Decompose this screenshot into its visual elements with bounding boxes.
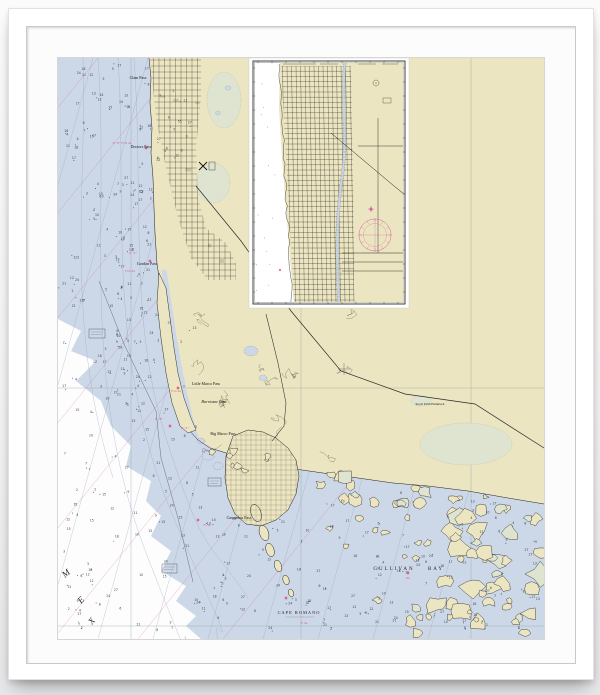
svg-text:7: 7 — [141, 312, 143, 316]
svg-text:24: 24 — [75, 278, 79, 282]
svg-text:2: 2 — [141, 281, 143, 285]
svg-text:3: 3 — [224, 577, 226, 581]
svg-text:3: 3 — [100, 384, 102, 388]
svg-text:Clam Pass: Clam Pass — [130, 75, 147, 80]
svg-text:Doctors Pass: Doctors Pass — [131, 144, 152, 149]
svg-text:Gordon Pass: Gordon Pass — [137, 261, 158, 266]
svg-text:17: 17 — [103, 360, 107, 364]
svg-text:G "1": G "1" — [181, 426, 190, 430]
svg-text:5: 5 — [93, 217, 95, 221]
svg-text:7: 7 — [171, 626, 173, 630]
svg-text:13: 13 — [192, 326, 196, 330]
svg-text:2: 2 — [63, 340, 65, 344]
svg-text:15: 15 — [127, 354, 131, 358]
svg-text:7: 7 — [500, 593, 502, 597]
svg-text:4: 4 — [76, 513, 78, 517]
svg-text:17: 17 — [345, 519, 349, 523]
svg-text:4: 4 — [512, 521, 514, 525]
svg-text:CAPE ROMANO: CAPE ROMANO — [278, 610, 321, 615]
svg-text:12: 12 — [86, 572, 90, 576]
svg-text:Little Marco Pass: Little Marco Pass — [192, 381, 221, 386]
svg-text:27: 27 — [114, 588, 118, 592]
svg-text:13: 13 — [167, 320, 171, 324]
svg-text:5: 5 — [130, 296, 132, 300]
svg-text:2: 2 — [72, 289, 74, 293]
svg-text:12: 12 — [369, 607, 373, 611]
svg-text:21: 21 — [147, 242, 151, 246]
svg-text:21: 21 — [66, 144, 70, 148]
svg-text:7: 7 — [323, 618, 325, 622]
svg-text:7: 7 — [425, 581, 427, 585]
svg-text:12: 12 — [67, 585, 71, 589]
svg-text:10: 10 — [486, 511, 490, 515]
svg-text:12: 12 — [149, 188, 153, 192]
svg-text:12: 12 — [352, 605, 356, 609]
svg-text:11: 11 — [82, 73, 86, 77]
svg-text:10: 10 — [105, 396, 109, 400]
svg-text:15: 15 — [129, 243, 133, 247]
svg-text:17: 17 — [222, 533, 226, 537]
svg-text:7: 7 — [93, 208, 95, 212]
svg-text:24: 24 — [164, 560, 168, 564]
svg-text:17: 17 — [93, 360, 97, 364]
svg-text:21: 21 — [72, 304, 76, 308]
svg-text:6: 6 — [139, 127, 141, 131]
svg-text:24: 24 — [155, 313, 159, 317]
svg-text:8: 8 — [116, 332, 118, 336]
svg-text:Hurricane Pass: Hurricane Pass — [200, 399, 227, 404]
svg-text:27: 27 — [117, 63, 121, 67]
svg-text:12: 12 — [90, 579, 94, 583]
svg-text:24: 24 — [99, 93, 103, 97]
svg-text:4: 4 — [97, 182, 99, 186]
svg-text:21: 21 — [117, 393, 121, 397]
svg-text:2: 2 — [76, 488, 78, 492]
svg-text:3: 3 — [125, 402, 127, 406]
svg-text:18: 18 — [115, 534, 119, 538]
svg-text:21: 21 — [62, 281, 66, 285]
svg-text:18: 18 — [82, 67, 86, 71]
svg-text:13: 13 — [389, 600, 393, 604]
svg-text:12: 12 — [74, 502, 78, 506]
svg-text:4: 4 — [382, 561, 384, 565]
svg-text:3: 3 — [104, 347, 106, 351]
svg-text:2: 2 — [494, 593, 496, 597]
svg-text:18: 18 — [118, 345, 122, 349]
svg-text:15: 15 — [90, 519, 94, 523]
svg-text:2: 2 — [143, 438, 145, 442]
svg-text:18: 18 — [473, 613, 477, 617]
svg-text:13: 13 — [127, 318, 131, 322]
svg-text:27: 27 — [531, 595, 535, 599]
svg-text:Royal Palm Hammock: Royal Palm Hammock — [415, 402, 444, 406]
svg-text:8: 8 — [186, 481, 188, 485]
svg-text:15: 15 — [145, 428, 149, 432]
svg-text:17: 17 — [92, 133, 96, 137]
svg-text:24: 24 — [170, 504, 174, 508]
svg-text:7: 7 — [133, 190, 135, 194]
svg-text:27: 27 — [241, 595, 245, 599]
svg-text:10: 10 — [139, 573, 143, 577]
svg-text:13: 13 — [533, 561, 537, 565]
svg-text:15: 15 — [179, 516, 183, 520]
svg-text:12: 12 — [241, 607, 245, 611]
svg-text:11: 11 — [133, 511, 137, 515]
svg-text:18: 18 — [98, 354, 102, 358]
svg-text:3: 3 — [300, 539, 302, 543]
svg-text:13: 13 — [140, 190, 144, 194]
svg-text:12: 12 — [143, 225, 147, 229]
svg-text:11: 11 — [183, 99, 187, 103]
svg-text:15: 15 — [148, 529, 152, 533]
svg-text:2: 2 — [68, 607, 70, 611]
svg-text:15: 15 — [480, 530, 484, 534]
svg-text:13: 13 — [75, 256, 79, 260]
svg-text:Big Marco Pass: Big Marco Pass — [210, 431, 236, 436]
svg-text:3: 3 — [472, 508, 474, 512]
svg-text:17: 17 — [72, 156, 76, 160]
svg-text:11: 11 — [148, 298, 152, 302]
svg-text:15: 15 — [67, 527, 71, 531]
svg-text:9: 9 — [535, 540, 537, 544]
svg-text:5: 5 — [359, 612, 361, 616]
svg-text:3: 3 — [378, 596, 380, 600]
svg-text:3: 3 — [86, 191, 88, 195]
svg-text:6: 6 — [119, 606, 121, 610]
svg-text:5: 5 — [112, 67, 114, 71]
svg-text:Fl G 4s: Fl G 4s — [171, 389, 182, 393]
svg-text:17: 17 — [138, 198, 142, 202]
svg-text:7: 7 — [402, 533, 404, 537]
svg-text:13: 13 — [471, 500, 475, 504]
svg-text:8: 8 — [523, 589, 525, 593]
svg-text:7: 7 — [134, 340, 136, 344]
svg-text:12: 12 — [141, 401, 145, 405]
svg-text:11: 11 — [196, 466, 200, 470]
svg-text:10: 10 — [100, 195, 104, 199]
svg-text:4: 4 — [470, 516, 472, 520]
svg-text:12: 12 — [110, 507, 114, 511]
svg-text:4: 4 — [77, 137, 79, 141]
svg-text:6: 6 — [83, 121, 85, 125]
svg-text:2: 2 — [94, 487, 96, 491]
svg-text:15: 15 — [405, 610, 409, 614]
svg-text:Caxambas Pass: Caxambas Pass — [227, 515, 252, 520]
svg-text:17: 17 — [365, 531, 369, 535]
svg-text:17: 17 — [62, 384, 66, 388]
svg-text:4: 4 — [115, 455, 117, 459]
svg-text:12: 12 — [70, 276, 74, 280]
svg-text:27: 27 — [316, 569, 320, 573]
svg-text:17: 17 — [331, 503, 335, 507]
svg-text:15: 15 — [194, 598, 198, 602]
svg-text:18: 18 — [353, 554, 357, 558]
svg-text:11: 11 — [123, 358, 127, 362]
svg-text:13: 13 — [216, 535, 220, 539]
svg-text:6: 6 — [319, 584, 321, 588]
svg-text:10: 10 — [341, 499, 345, 503]
svg-text:9: 9 — [116, 340, 118, 344]
svg-text:8: 8 — [238, 523, 240, 527]
svg-text:6: 6 — [400, 491, 402, 495]
svg-text:18: 18 — [88, 568, 92, 572]
svg-text:5: 5 — [192, 493, 194, 497]
svg-text:6: 6 — [157, 156, 159, 160]
svg-text:17: 17 — [449, 560, 453, 564]
svg-text:8: 8 — [501, 573, 503, 577]
svg-text:24: 24 — [288, 601, 292, 605]
svg-text:24: 24 — [276, 583, 280, 587]
svg-text:12: 12 — [175, 154, 179, 158]
svg-text:15: 15 — [161, 520, 165, 524]
svg-text:9: 9 — [124, 371, 126, 375]
svg-text:R "8": R "8" — [155, 417, 163, 421]
svg-text:10: 10 — [444, 620, 448, 624]
svg-text:21: 21 — [136, 622, 140, 626]
svg-text:4: 4 — [75, 377, 77, 381]
svg-text:9: 9 — [155, 513, 157, 517]
svg-text:21: 21 — [131, 181, 135, 185]
svg-text:Fl 4s: Fl 4s — [204, 523, 211, 527]
svg-text:8: 8 — [168, 116, 170, 120]
svg-text:8: 8 — [495, 516, 497, 520]
svg-text:27: 27 — [525, 548, 529, 552]
svg-text:27: 27 — [440, 610, 444, 614]
svg-text:5: 5 — [102, 77, 104, 81]
svg-text:11: 11 — [449, 576, 453, 580]
svg-text:7: 7 — [127, 105, 129, 109]
svg-text:2: 2 — [183, 384, 185, 388]
svg-text:12: 12 — [378, 573, 382, 577]
svg-text:10: 10 — [382, 591, 386, 595]
svg-text:6: 6 — [121, 285, 123, 289]
svg-text:6: 6 — [117, 292, 119, 296]
svg-text:10: 10 — [135, 533, 139, 537]
svg-text:11: 11 — [97, 243, 101, 247]
svg-text:3: 3 — [87, 562, 89, 566]
svg-text:24: 24 — [113, 193, 117, 197]
svg-text:4: 4 — [79, 609, 81, 613]
svg-text:Fl 4s: Fl 4s — [301, 621, 308, 625]
svg-text:17: 17 — [528, 552, 532, 556]
svg-text:24: 24 — [136, 375, 140, 379]
svg-text:11: 11 — [463, 560, 467, 564]
svg-text:9: 9 — [365, 611, 367, 615]
svg-text:17: 17 — [492, 501, 496, 505]
svg-text:11: 11 — [244, 534, 248, 538]
svg-text:13: 13 — [536, 597, 540, 601]
svg-text:15: 15 — [75, 408, 79, 412]
svg-text:Fl R 4s: Fl R 4s — [125, 269, 135, 273]
svg-text:13: 13 — [124, 94, 128, 98]
svg-text:6: 6 — [116, 329, 118, 333]
svg-text:27: 27 — [125, 466, 129, 470]
svg-text:13: 13 — [297, 567, 301, 571]
svg-text:18: 18 — [147, 124, 151, 128]
svg-text:4: 4 — [66, 133, 68, 137]
picture-frame: 1175131141124211878615138415132122421211… — [8, 8, 594, 680]
svg-text:2: 2 — [486, 623, 488, 627]
svg-text:24: 24 — [416, 563, 420, 567]
svg-text:9: 9 — [505, 538, 507, 542]
svg-text:21: 21 — [156, 461, 160, 465]
svg-text:13: 13 — [168, 477, 172, 481]
svg-text:3: 3 — [295, 598, 297, 602]
svg-text:4: 4 — [131, 392, 133, 396]
svg-text:10: 10 — [305, 528, 309, 532]
svg-text:3: 3 — [104, 254, 106, 258]
svg-text:13: 13 — [116, 257, 120, 261]
svg-text:8: 8 — [524, 521, 526, 525]
svg-text:8: 8 — [148, 231, 150, 235]
svg-text:6: 6 — [217, 616, 219, 620]
svg-text:4: 4 — [106, 227, 108, 231]
svg-text:10: 10 — [95, 213, 99, 217]
nautical-chart: 1175131141124211878615138415132122421211… — [58, 58, 544, 639]
svg-text:18: 18 — [144, 358, 148, 362]
svg-text:24: 24 — [119, 100, 123, 104]
svg-text:10: 10 — [421, 555, 425, 559]
svg-text:12: 12 — [148, 375, 152, 379]
svg-text:27: 27 — [188, 120, 192, 124]
svg-text:6: 6 — [184, 434, 186, 438]
svg-text:24: 24 — [268, 626, 272, 630]
svg-text:5: 5 — [141, 162, 143, 166]
svg-text:5: 5 — [221, 582, 223, 586]
svg-text:27: 27 — [351, 594, 355, 598]
svg-text:5: 5 — [105, 288, 107, 292]
svg-text:5: 5 — [173, 128, 175, 132]
svg-text:7: 7 — [85, 461, 87, 465]
svg-text:3: 3 — [170, 621, 172, 625]
svg-text:9: 9 — [127, 490, 129, 494]
svg-text:BAY: BAY — [428, 567, 444, 572]
svg-text:13: 13 — [92, 92, 96, 96]
svg-text:7: 7 — [117, 182, 119, 186]
svg-text:6: 6 — [498, 530, 500, 534]
svg-text:18: 18 — [472, 602, 476, 606]
svg-text:21: 21 — [375, 620, 379, 624]
svg-text:24: 24 — [106, 594, 110, 598]
inset-map — [249, 58, 409, 308]
svg-text:6: 6 — [80, 574, 82, 578]
svg-text:21: 21 — [393, 618, 397, 622]
svg-text:6: 6 — [490, 586, 492, 590]
svg-text:10: 10 — [89, 433, 93, 437]
svg-text:3: 3 — [63, 550, 65, 554]
svg-text:8: 8 — [195, 425, 197, 429]
svg-text:21: 21 — [323, 623, 327, 627]
svg-text:27: 27 — [128, 228, 132, 232]
svg-text:8: 8 — [181, 149, 183, 153]
svg-text:2: 2 — [461, 523, 463, 527]
svg-text:13: 13 — [121, 237, 125, 241]
svg-text:2: 2 — [180, 340, 182, 344]
svg-text:4: 4 — [90, 410, 92, 414]
svg-text:13: 13 — [98, 97, 102, 101]
svg-text:3: 3 — [122, 183, 124, 187]
svg-text:9: 9 — [119, 189, 121, 193]
svg-text:4: 4 — [153, 358, 155, 362]
svg-text:9: 9 — [262, 548, 264, 552]
svg-text:2: 2 — [172, 89, 174, 93]
svg-text:2: 2 — [150, 196, 152, 200]
svg-text:11: 11 — [202, 606, 206, 610]
svg-text:GULLIVAN: GULLIVAN — [373, 567, 414, 572]
svg-text:4: 4 — [120, 297, 122, 301]
svg-text:9: 9 — [338, 536, 340, 540]
nautical-chart-svg: 1175131141124211878615138415132122421211… — [58, 58, 544, 639]
svg-text:11: 11 — [120, 367, 124, 371]
svg-text:10: 10 — [118, 231, 122, 235]
svg-text:18: 18 — [74, 146, 78, 150]
svg-text:12: 12 — [139, 184, 143, 188]
svg-text:11: 11 — [462, 619, 466, 623]
svg-text:27: 27 — [157, 137, 161, 141]
svg-text:21: 21 — [79, 299, 83, 303]
svg-text:10: 10 — [212, 518, 216, 522]
svg-text:2: 2 — [73, 255, 75, 259]
wall-background: 1175131141124211878615138415132122421211… — [0, 0, 600, 695]
svg-text:15: 15 — [171, 438, 175, 442]
svg-text:12: 12 — [267, 558, 271, 562]
svg-text:27: 27 — [124, 176, 128, 180]
svg-text:11: 11 — [137, 409, 141, 413]
svg-text:13: 13 — [344, 614, 348, 618]
svg-text:7: 7 — [84, 129, 86, 133]
svg-text:21: 21 — [144, 310, 148, 314]
svg-text:18: 18 — [64, 129, 68, 133]
svg-text:24: 24 — [77, 71, 81, 75]
svg-text:5: 5 — [377, 522, 379, 526]
svg-text:6: 6 — [425, 560, 427, 564]
svg-text:9: 9 — [138, 272, 140, 276]
svg-text:9: 9 — [186, 135, 188, 139]
svg-text:17: 17 — [327, 606, 331, 610]
svg-text:7: 7 — [433, 614, 435, 618]
svg-text:17: 17 — [406, 545, 410, 549]
svg-text:9: 9 — [226, 601, 228, 605]
svg-text:4: 4 — [137, 384, 139, 388]
svg-text:15: 15 — [108, 106, 112, 110]
svg-text:5: 5 — [277, 529, 279, 533]
svg-text:13: 13 — [323, 587, 327, 591]
svg-text:17: 17 — [134, 202, 138, 206]
svg-text:6: 6 — [222, 598, 224, 602]
svg-text:8: 8 — [464, 626, 466, 630]
svg-text:G "1": G "1" — [129, 251, 138, 255]
svg-text:15: 15 — [102, 493, 106, 497]
svg-text:18: 18 — [213, 594, 217, 598]
svg-text:24: 24 — [150, 331, 154, 335]
svg-text:5: 5 — [140, 340, 142, 344]
svg-text:11: 11 — [127, 282, 131, 286]
svg-text:7: 7 — [89, 467, 91, 471]
svg-text:R "2" Fl R 4s: R "2" Fl R 4s — [113, 141, 132, 145]
svg-text:6: 6 — [166, 147, 168, 151]
svg-text:15: 15 — [163, 575, 167, 579]
svg-text:21: 21 — [146, 268, 150, 272]
svg-text:27: 27 — [306, 600, 310, 604]
svg-text:17: 17 — [121, 264, 125, 268]
svg-text:3: 3 — [157, 339, 159, 343]
svg-text:21: 21 — [281, 520, 285, 524]
svg-text:17: 17 — [76, 102, 80, 106]
svg-text:12: 12 — [89, 73, 93, 77]
svg-text:7: 7 — [64, 451, 66, 455]
svg-text:3: 3 — [159, 93, 161, 97]
svg-text:13: 13 — [181, 533, 185, 537]
